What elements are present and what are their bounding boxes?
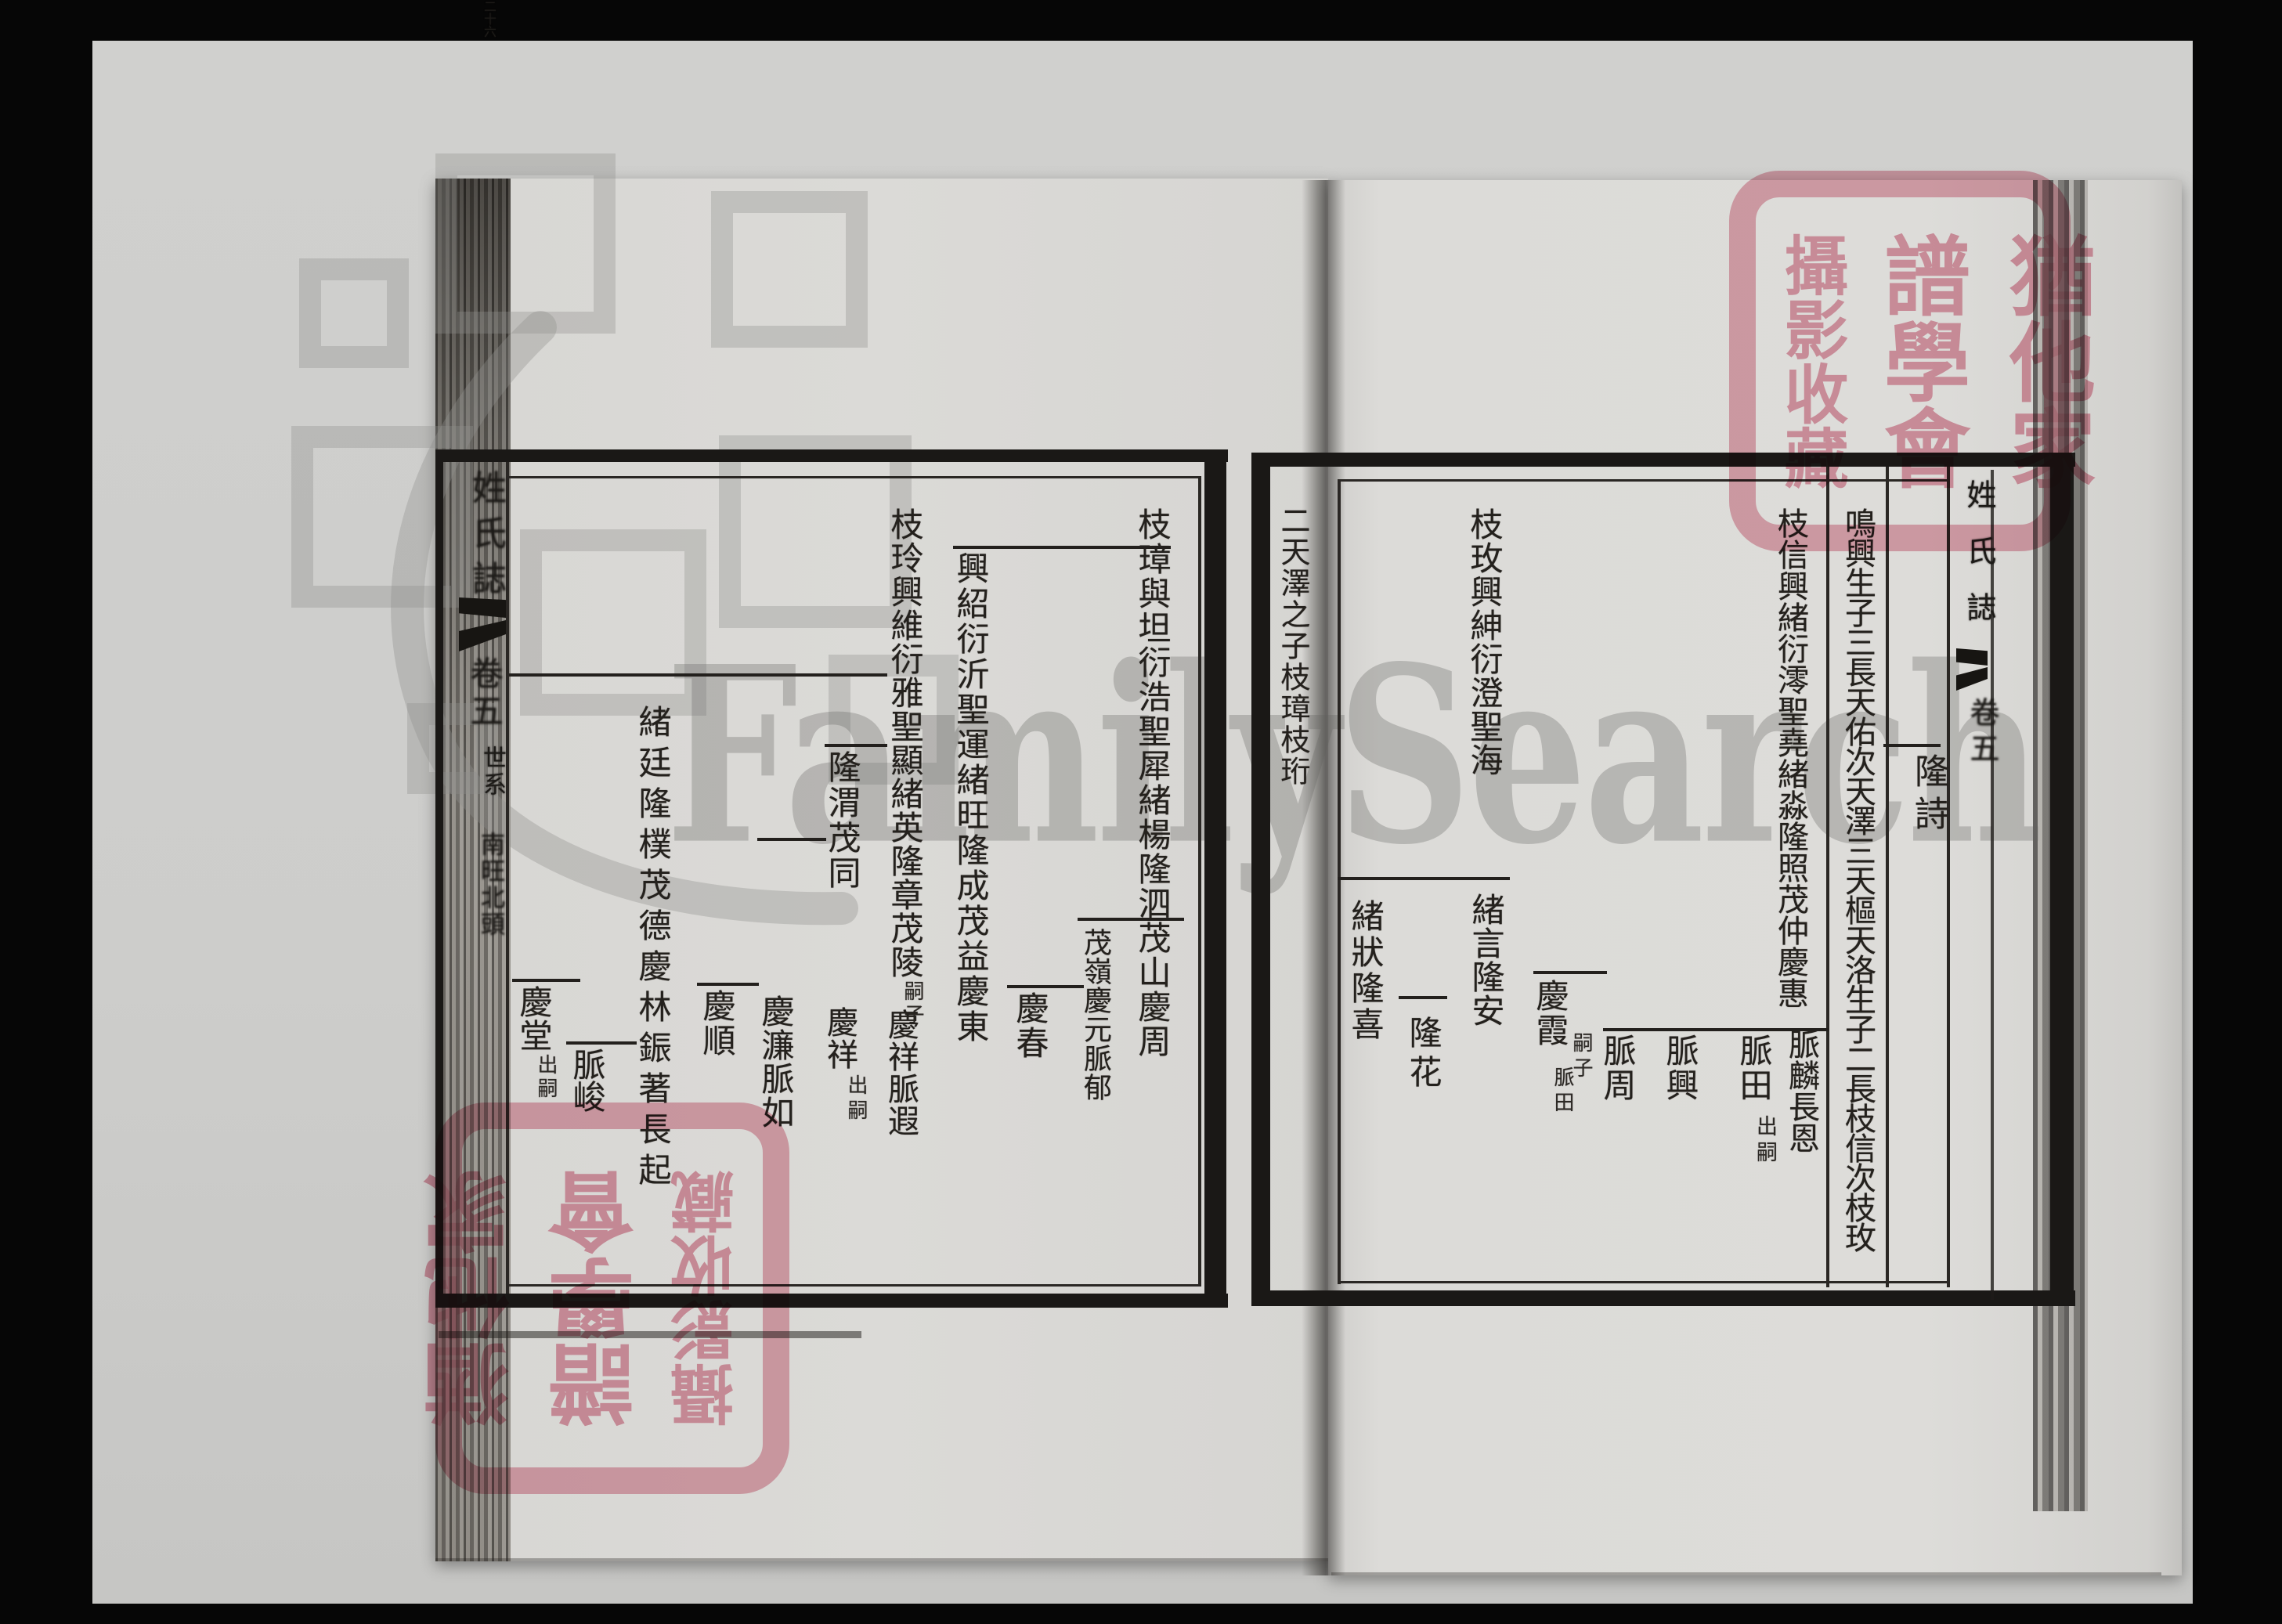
right-frame-inner-left (1338, 479, 1341, 1284)
genealogy-name-column: 出嗣 (846, 1074, 866, 1124)
genealogy-name-column: 隆花 (1406, 1016, 1439, 1094)
genealogy-name-column: 隆渭茂同 (825, 750, 858, 891)
left-banxin-page-number: 二十六 (479, 0, 498, 38)
genealogy-name-column: 枝玲興維衍雅聖顯緒英隆章茂陵 (888, 507, 921, 979)
genealogy-name-column: 脈周 (1601, 1034, 1634, 1103)
genealogy-name-column: 慶堂 (517, 985, 550, 1052)
lineage-branch-line (512, 979, 580, 982)
lineage-branch-line (1007, 985, 1084, 988)
genealogy-name-column: 脈麟長恩 (1786, 1028, 1817, 1153)
genealogy-name-column: 枝信興緒衍澪聖堯緒淼隆照茂仲慶惠 (1775, 507, 1806, 1009)
right-banxin-divider (1947, 467, 1950, 1287)
genealogy-name-column: 慶春 (1013, 991, 1046, 1060)
lineage-branch-line (757, 838, 826, 841)
genealogy-name-column: 慶霞 (1533, 979, 1566, 1048)
left-frame-right (1204, 449, 1226, 1308)
right-sheet-bottom-edge (1331, 1572, 2161, 1575)
genealogy-name-column: 鳴興生子三長天佑次天澤三天樞天洛生子二長枝信次枝玫 (1842, 507, 1873, 1251)
genealogy-name-column: 出嗣 (536, 1054, 556, 1101)
right-column-rule-1 (1826, 467, 1829, 1287)
genealogy-name-column: 慶祥脈遐 (885, 1009, 916, 1137)
seal-script-column: 譜學會 (1857, 211, 1982, 511)
left-banxin-volume: 卷五 (460, 656, 508, 731)
seal-script-column: 猶他家 (1982, 211, 2107, 511)
scanned-genealogy-spread: FamilySearch 姓氏誌 卷五 世系 南旺北頭 二十六 姓氏誌 卷五 枝… (0, 0, 2282, 1624)
genealogy-name-column: 二天澤之子枝璋枝珩 (1278, 505, 1308, 787)
genealogy-name-column: 出嗣 (1754, 1115, 1775, 1167)
left-frame-top (439, 449, 1228, 462)
right-banxin-volume: 卷五 (1961, 697, 2004, 769)
seal-script-column: 猶他家 (411, 1143, 536, 1453)
right-column-rule-2 (1886, 467, 1889, 1287)
seal-script-column: 譜學會 (536, 1143, 662, 1453)
lineage-branch-line (1603, 1028, 1829, 1031)
seal-script-column: 攝影收藏 (1764, 211, 1857, 511)
genealogy-name-column: 慶順 (700, 989, 733, 1058)
left-banxin-location: 南旺北頭 (473, 832, 508, 938)
lineage-branch-line (825, 744, 887, 747)
genealogy-name-column: 枝璋與坦衍浩聖犀緒楊隆泗茂山慶周 (1136, 507, 1168, 1059)
left-banxin-section: 世系 (475, 745, 509, 799)
lineage-branch-line (697, 983, 759, 986)
lineage-branch-line (1399, 996, 1447, 999)
lineage-branch-line (953, 546, 1171, 549)
genealogy-name-column: 枝玫興紳衍澄聖海 (1468, 507, 1500, 777)
right-frame-bottom (1251, 1290, 2075, 1306)
left-frame-inner-top (507, 476, 1201, 478)
collection-seal-bottom-left: 猶他家譜學會攝影收藏 (435, 1103, 789, 1494)
left-banxin-title: 姓氏誌 (460, 470, 511, 606)
genealogy-name-column: 興紹衍沂聖運緒旺隆成茂益慶東 (954, 551, 987, 1045)
seal-script-column: 攝影收藏 (662, 1143, 755, 1453)
familysearch-watermark-text: FamilySearch (666, 600, 2039, 915)
genealogy-name-column: 緒言隆安 (1469, 893, 1502, 1027)
genealogy-name-column: 脈興 (1663, 1034, 1696, 1103)
left-sheet-bottom-edge (435, 1558, 1328, 1561)
right-frame-left (1251, 453, 1270, 1306)
genealogy-name-column: 脈田 (1552, 1066, 1572, 1117)
left-frame-inner-right (1198, 476, 1201, 1287)
lineage-branch-line (566, 1041, 637, 1045)
genealogy-name-column: 慶祥 (824, 1006, 855, 1070)
right-frame-inner-bottom (1338, 1281, 1948, 1283)
lineage-branch-line (1883, 744, 1941, 747)
lineage-branch-line (509, 673, 887, 677)
collection-seal-top-right: 猶他家譜學會攝影收藏 (1729, 171, 2071, 551)
genealogy-name-column: 脈田 (1737, 1034, 1770, 1103)
lineage-branch-line (1533, 971, 1607, 974)
genealogy-name-column: 茂嶺慶元脈郁 (1081, 928, 1109, 1102)
genealogy-name-column: 緒狀隆喜 (1349, 899, 1381, 1043)
right-frame-right (2050, 453, 2074, 1306)
lineage-branch-line (1078, 918, 1184, 921)
genealogy-name-column: 隆詩 (1911, 753, 1945, 838)
lineage-branch-line (1338, 877, 1510, 880)
